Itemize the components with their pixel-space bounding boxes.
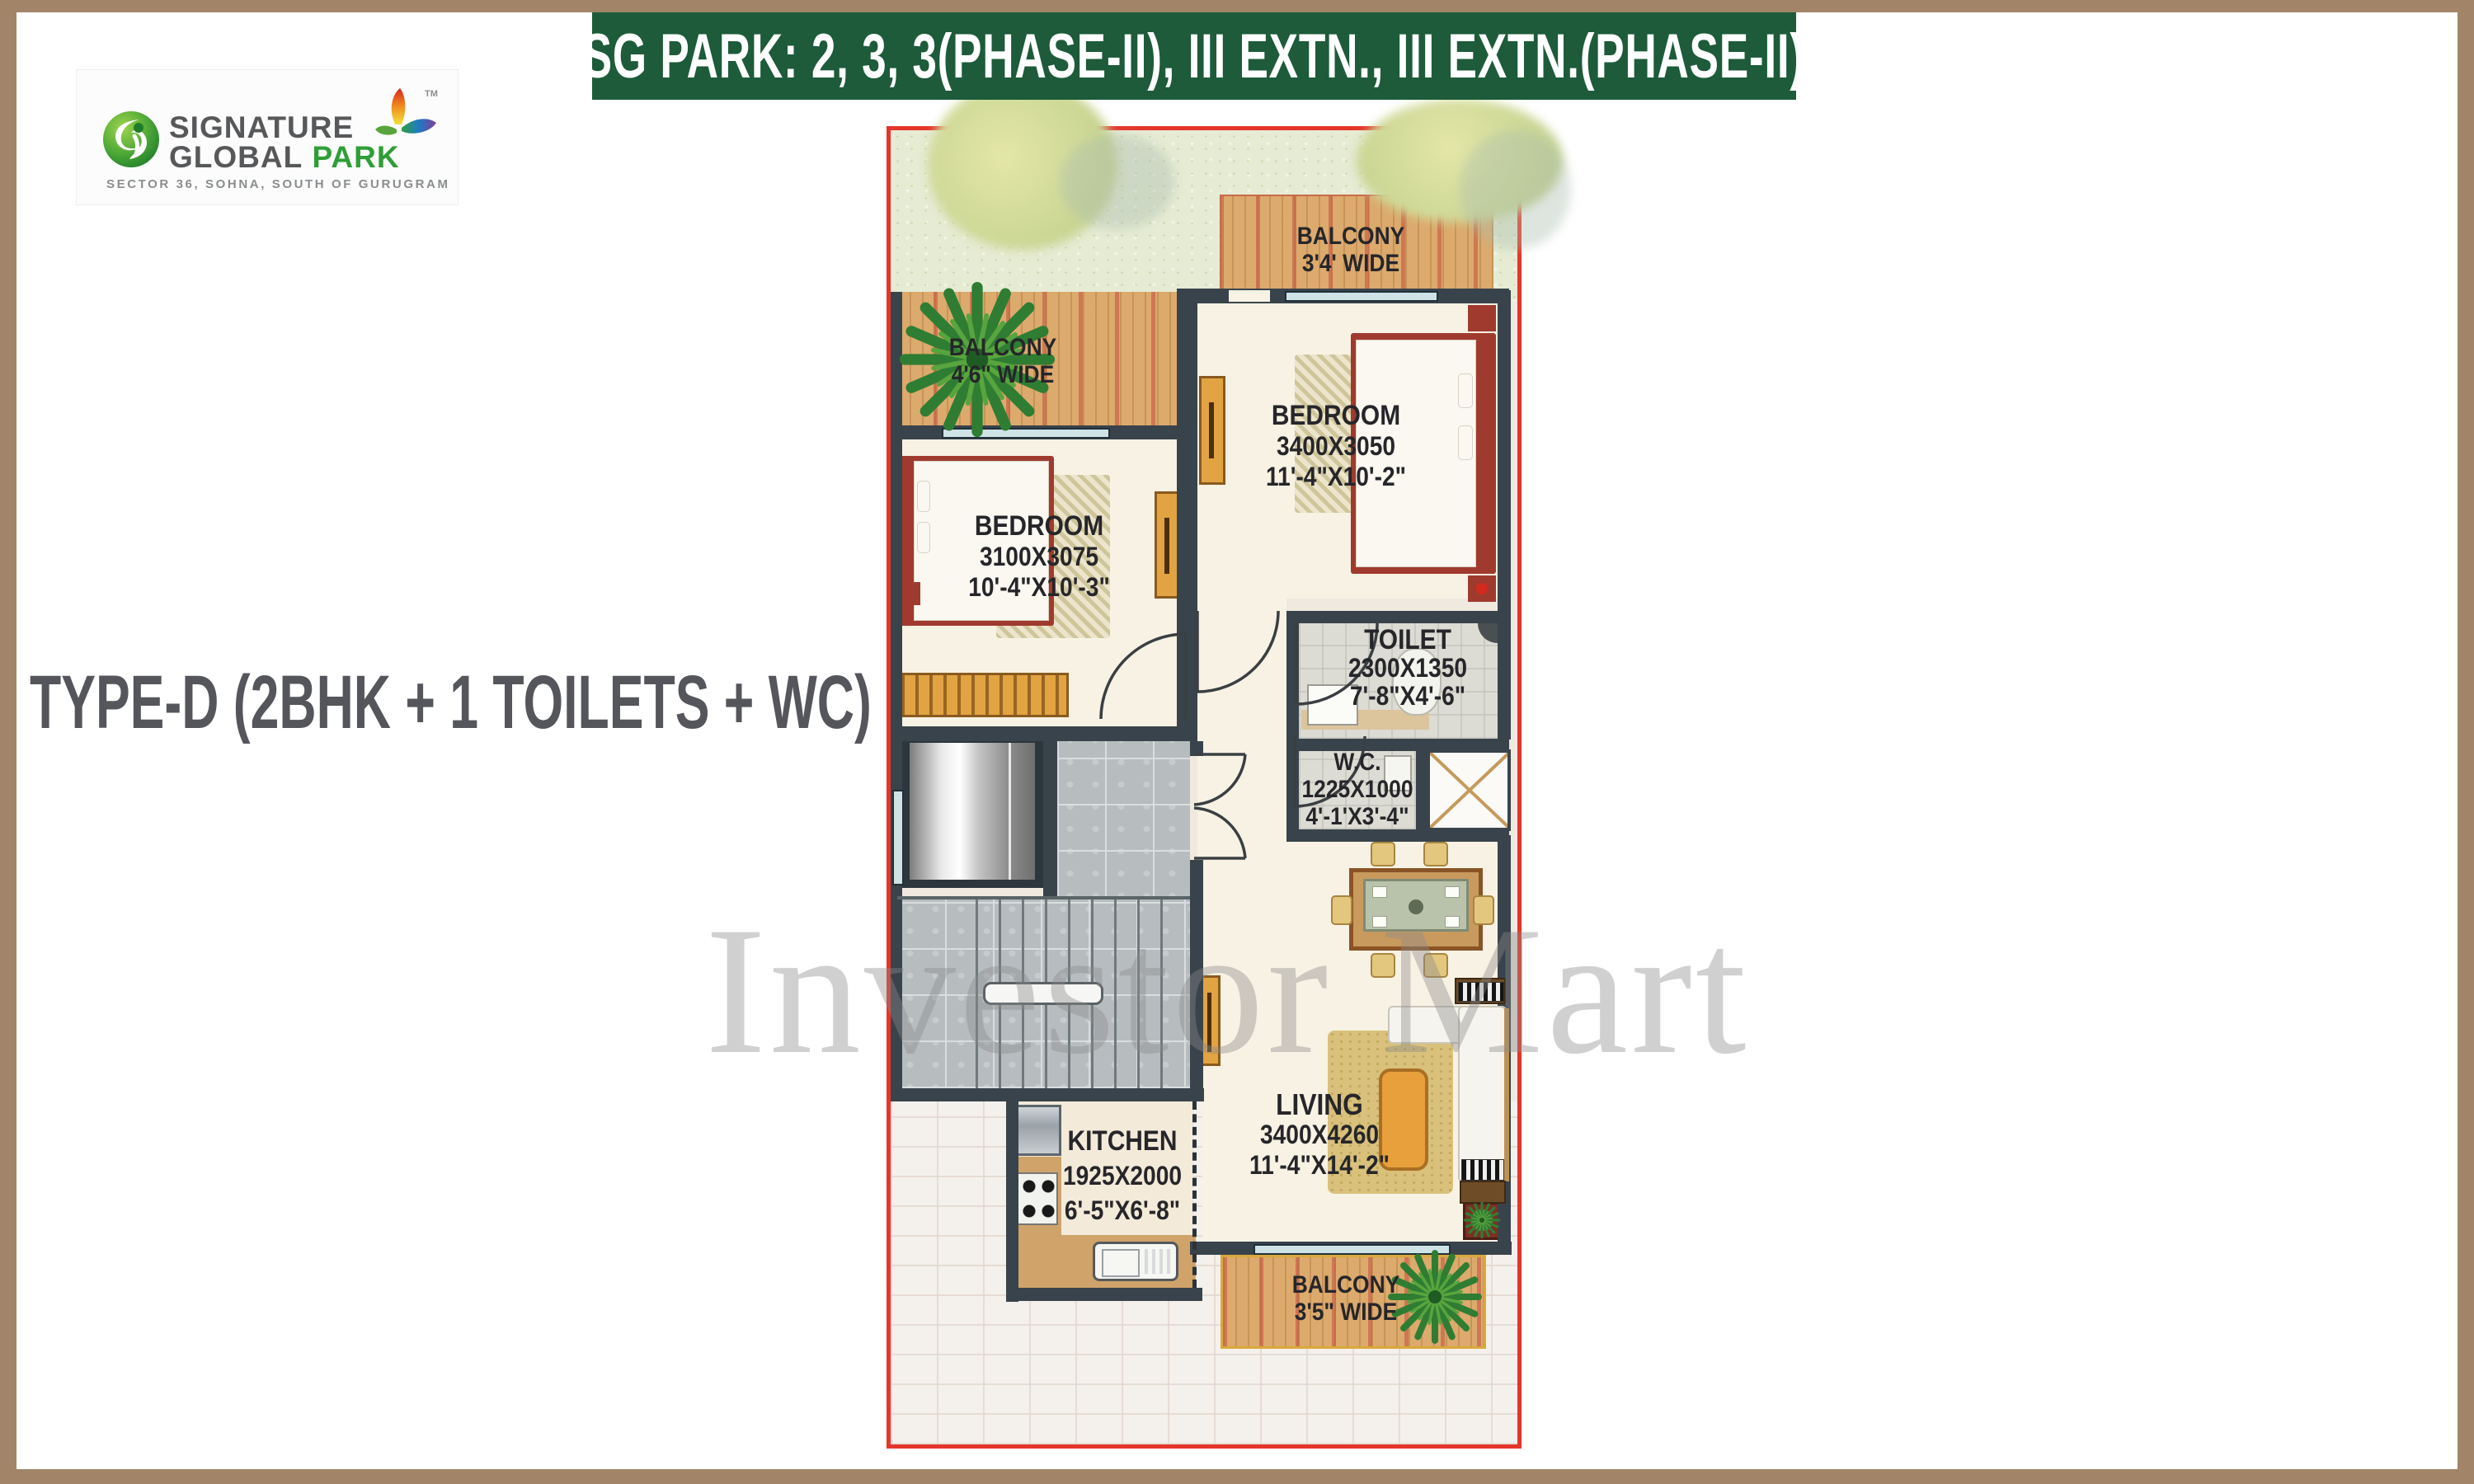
stair-edge [897, 896, 1190, 899]
frame-right [2458, 0, 2474, 1484]
dresser [899, 673, 1069, 717]
leaf-icon: TM [364, 87, 438, 151]
planter-box [1463, 1202, 1501, 1240]
dining-chair [1473, 895, 1494, 925]
living-label: LIVING 3400X4260 11'-4"X14'-2" [1225, 1089, 1414, 1181]
frame-left [0, 0, 16, 1484]
dining-chair [1371, 953, 1395, 978]
bedroom-right-label: BEDROOM 3400X3050 11'-4"X10'-2" [1242, 401, 1431, 492]
dining-chair [1423, 953, 1448, 978]
brand-tm: TM [425, 89, 438, 99]
kitchen-label: KITCHEN 1925X2000 6'-5"X6'-8" [1028, 1124, 1217, 1228]
tree-shadow [1460, 130, 1571, 250]
frame-top [0, 0, 2474, 12]
dining-chair [1371, 842, 1395, 866]
toilet-label: TOILET 2300X1350 7'-8"X4'-6" [1314, 626, 1503, 710]
lift-shaft [901, 735, 1043, 888]
wall [1286, 829, 1509, 842]
sofa-side-table [1460, 1181, 1506, 1204]
lamp-icon [1476, 583, 1488, 594]
drainboard [1145, 1249, 1171, 1274]
dining-table [1363, 879, 1469, 932]
window [892, 790, 904, 885]
cabinet-handle [1207, 993, 1211, 1052]
bedroom-left-label: BEDROOM 3100X3075 10'-4"X10'-3" [945, 511, 1134, 603]
lobby-floor [1057, 729, 1190, 898]
sofa-body [1458, 1006, 1506, 1182]
sofa-cushion [1458, 982, 1504, 1002]
lift-door-line [1009, 743, 1011, 880]
wall [1190, 860, 1203, 1090]
balcony-top-label: BALCONY 3'4' WIDE [1257, 223, 1446, 277]
wc-label: W.C. 1225X1000 4'-1'X3'-4" [1263, 749, 1452, 830]
wall [891, 726, 1197, 741]
sink-bowl [1102, 1249, 1140, 1277]
kitchen-sink [1093, 1242, 1178, 1281]
signature-global-logo-icon [101, 110, 161, 169]
wall [1177, 289, 1197, 425]
sofa-cushion [1461, 1159, 1504, 1181]
tree-shadow [1060, 134, 1175, 229]
pillow [1458, 373, 1473, 408]
wall [1177, 425, 1197, 726]
stair-handrail [983, 982, 1103, 1005]
wall [1043, 729, 1057, 898]
brand-logo-card: SIGNATURE GLOBAL PARK TM SECTOR 36, SOHN… [76, 69, 459, 205]
project-banner-text: SG PARK: 2, 3, 3(PHASE-II), III EXTN., I… [583, 21, 1805, 92]
nightstand [1468, 575, 1496, 602]
window [1253, 1244, 1451, 1255]
wall-outer-left [891, 292, 902, 1097]
wardrobe-handle [1164, 518, 1169, 574]
window [1285, 291, 1438, 302]
dining-chair [1423, 842, 1448, 866]
wall [1006, 1101, 1018, 1302]
wall [891, 1088, 1204, 1101]
balcony-door-gap [1227, 290, 1272, 302]
sofa-frame [1504, 1008, 1509, 1181]
window [942, 428, 1110, 439]
pillow [1458, 425, 1473, 460]
project-banner: SG PARK: 2, 3, 3(PHASE-II), III EXTN., I… [592, 12, 1796, 100]
nightstand [1468, 305, 1496, 331]
floor-plan-page: SG PARK: 2, 3, 3(PHASE-II), III EXTN., I… [0, 0, 2474, 1484]
balcony-bottom-label: BALCONY 3'5" WIDE [1252, 1271, 1441, 1326]
pillow [917, 522, 930, 553]
balcony-left-label: BALCONY 4'6" WIDE [909, 334, 1098, 388]
wall [1190, 741, 1203, 756]
bowl-icon [1409, 899, 1423, 914]
dining-chair [1331, 895, 1352, 925]
floor-plan: BALCONY 3'4' WIDE BALCONY 4'6" WIDE BEDR… [887, 126, 1522, 1449]
brand-tagline: SECTOR 36, SOHNA, SOUTH OF GURUGRAM [106, 177, 450, 191]
wall [1286, 611, 1498, 623]
unit-type-title: TYPE-D (2BHK + 1 TOILETS + WC) [30, 660, 872, 746]
lift-car [910, 743, 1035, 880]
wall [1006, 1288, 1202, 1301]
pillow [917, 481, 930, 512]
frame-bottom [0, 1469, 2474, 1484]
wardrobe-handle [1209, 402, 1214, 458]
